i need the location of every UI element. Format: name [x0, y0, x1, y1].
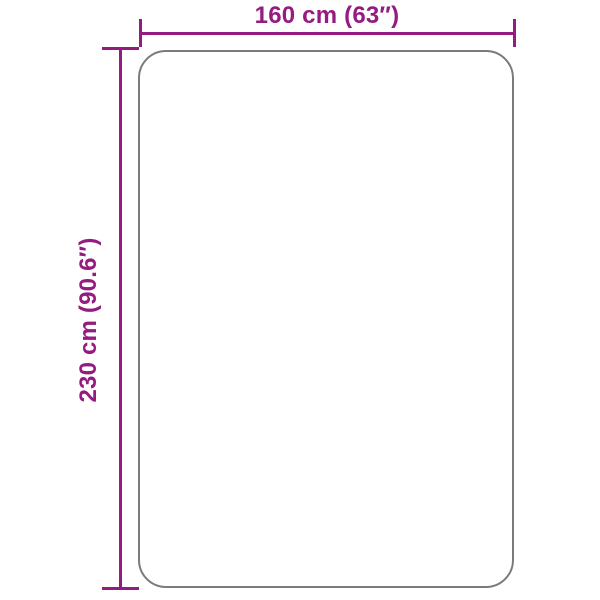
width-dimension-line [140, 32, 515, 35]
dimension-diagram: 160 cm (63″) 230 cm (90.6″) [0, 0, 600, 600]
width-dimension-cap-left [139, 19, 142, 47]
height-dimension-label: 230 cm (90.6″) [77, 237, 101, 402]
height-dimension-cap-top [102, 47, 139, 50]
width-dimension-label: 160 cm (63″) [255, 4, 400, 28]
height-dimension-line [119, 48, 122, 588]
product-outline [138, 50, 514, 588]
width-dimension-cap-right [513, 19, 516, 47]
height-dimension-cap-bottom [102, 587, 139, 590]
